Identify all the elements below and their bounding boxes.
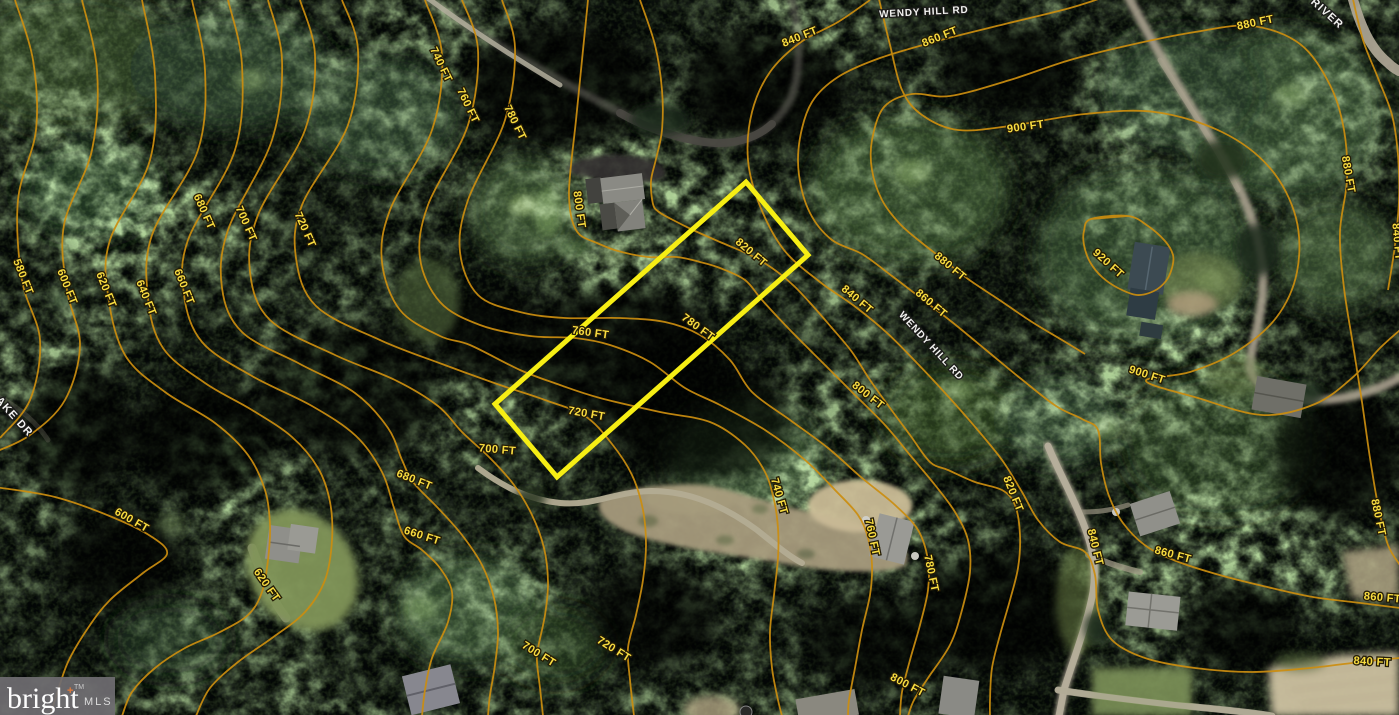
svg-text:TM: TM [74, 684, 84, 691]
svg-text:+: + [67, 685, 73, 697]
svg-text:MLS: MLS [84, 696, 113, 708]
svg-text:840 FT: 840 FT [1353, 655, 1391, 669]
